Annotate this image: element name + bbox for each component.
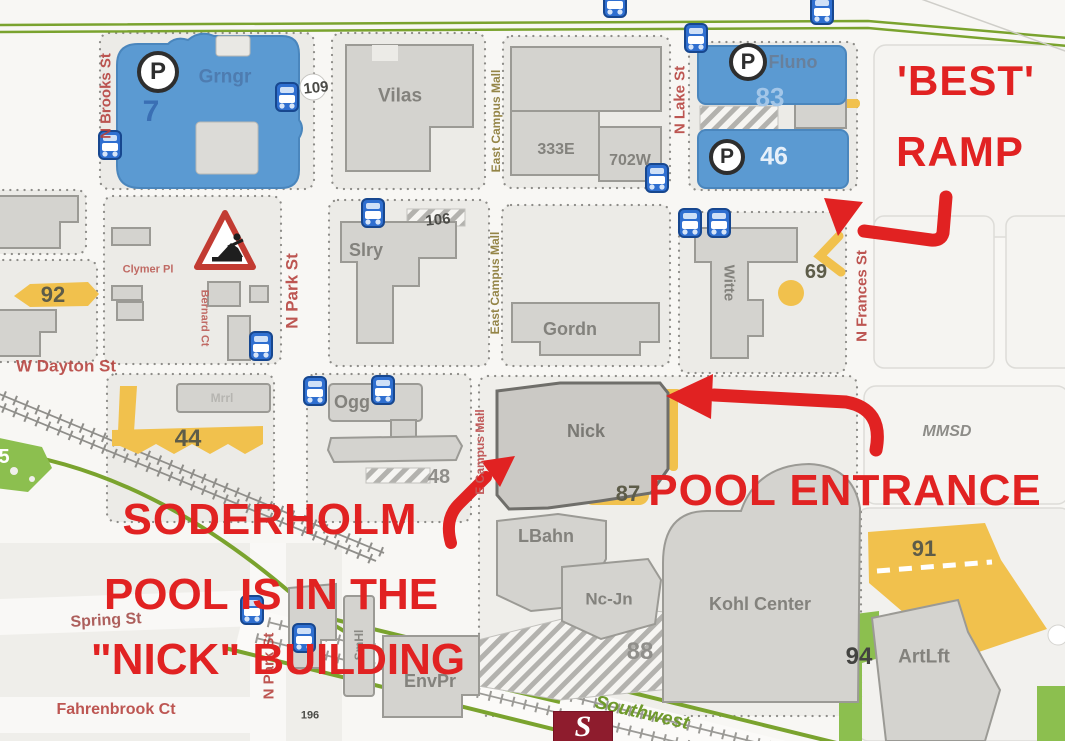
- s-logo: S: [553, 711, 613, 741]
- building-ncjn: [562, 559, 661, 639]
- parking-p-letter: P: [741, 49, 756, 75]
- bus-icon: [99, 131, 121, 159]
- map-graphics: [0, 0, 1065, 741]
- bus-icon: [241, 596, 263, 624]
- bus-icon: [685, 24, 707, 52]
- bus-icon: [708, 209, 730, 237]
- bus-icon: [304, 377, 326, 405]
- bus-icon: [276, 83, 298, 111]
- building-333e: [511, 111, 599, 175]
- campus-map-canvas: P P P N Brooks St N Lake St N Park St N …: [0, 0, 1065, 741]
- building-smhl: [344, 596, 374, 696]
- bus-icon: [811, 0, 833, 24]
- bus-icon: [293, 624, 315, 652]
- parking-icon: P: [729, 43, 767, 81]
- s-logo-letter: S: [575, 712, 592, 741]
- bus-icon: [372, 376, 394, 404]
- parking-p-letter: P: [720, 145, 734, 169]
- bus-icon: [250, 332, 272, 360]
- ramp-fluno: [698, 46, 846, 104]
- bus-icon: [604, 0, 626, 17]
- parking-icon: P: [709, 139, 745, 175]
- bus-icon: [362, 199, 384, 227]
- bus-icon: [679, 209, 701, 237]
- bus-icon: [646, 164, 668, 192]
- parking-icon: P: [137, 51, 179, 93]
- parking-p-letter: P: [150, 58, 166, 86]
- building-nick: [497, 383, 668, 509]
